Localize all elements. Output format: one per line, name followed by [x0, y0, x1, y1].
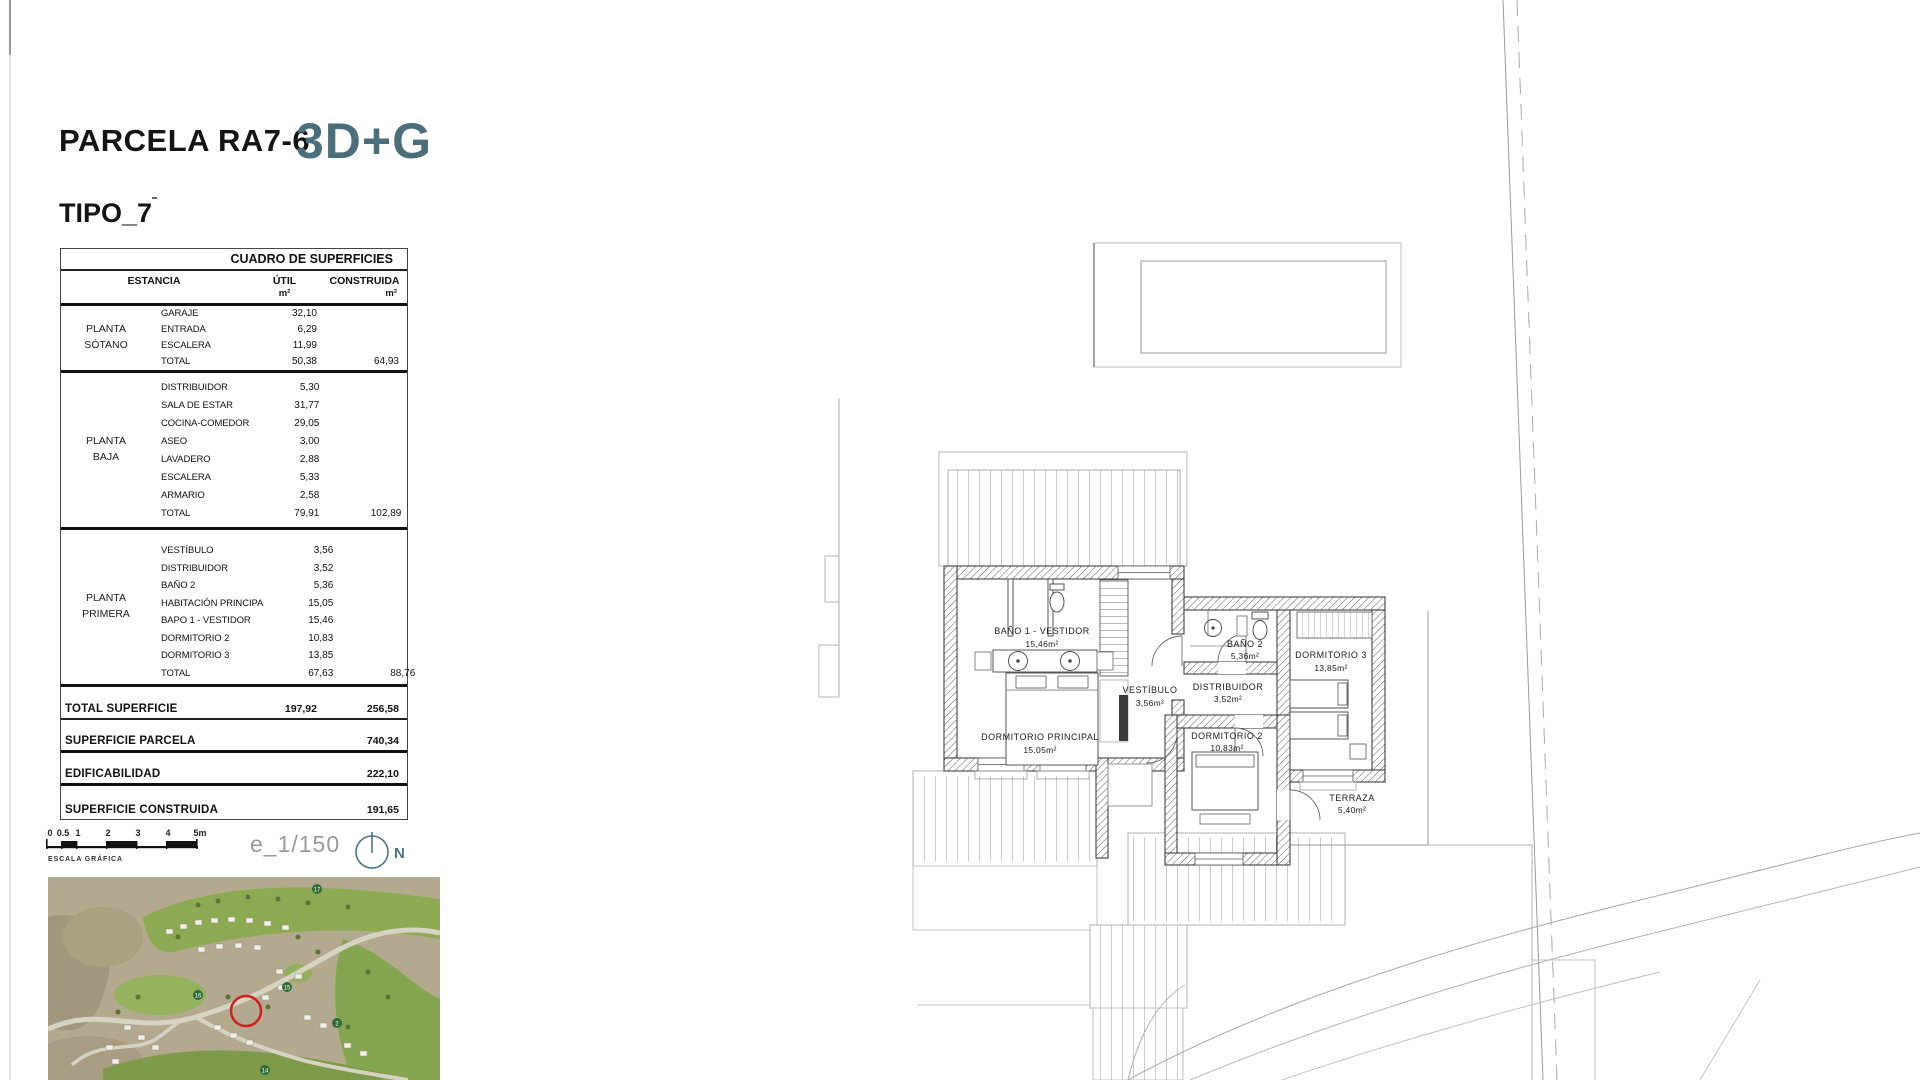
room-label-distribuidor: DISTRIBUIDOR: [1193, 682, 1264, 692]
group-label: PLANTA SÓTANO: [61, 306, 151, 370]
type-label: TIPO_7: [59, 198, 152, 229]
scale-tick: 0.5: [57, 828, 70, 838]
col-util-unit: m²: [247, 288, 322, 301]
model-code: 3D+G: [296, 112, 432, 170]
table-row: LAVADERO2,88: [151, 451, 409, 469]
room-label-dormitorio3: DORMITORIO 3: [1295, 650, 1367, 660]
room-label-principal: DORMITORIO PRINCIPAL: [981, 732, 1099, 742]
section-planta-sotano: PLANTA SÓTANO GARAJE32,10 ENTRADA6,29 ES…: [61, 306, 407, 373]
room-area-distribuidor: 3,52m²: [1214, 694, 1242, 704]
scale-tick: 2: [105, 828, 110, 838]
table-row: DORMITORIO 210,83: [151, 629, 423, 647]
location-map: 17 16 15 2 14: [48, 877, 440, 1080]
table-total-row: TOTAL67,6388,76: [151, 664, 423, 682]
table-row: HABITACIÓN PRINCIPA15,05: [151, 594, 423, 612]
table-row: BAÑO 25,36: [151, 577, 423, 595]
group-label: PLANTA BAJA: [61, 373, 151, 527]
col-util: ÚTIL: [247, 274, 322, 288]
room-area-bano1: 15,46m²: [1025, 639, 1058, 649]
table-row: ENTRADA6,29: [151, 322, 407, 338]
room-label-terraza: TERRAZA: [1329, 793, 1375, 803]
table-title: CUADRO DE SUPERFICIES: [61, 249, 407, 271]
north-label: N: [394, 845, 405, 862]
north-arrow-icon: N: [342, 822, 422, 878]
scale-tick: 4: [165, 828, 170, 838]
graphic-scale-bar: 0 0.5 1 2 3 4 5m ESCALA GRÁFICA: [48, 828, 223, 870]
table-total-row: TOTAL79,91102,89: [151, 505, 409, 523]
scale-tick: 5m: [193, 828, 206, 838]
table-row: DORMITORIO 313,85: [151, 647, 423, 665]
room-area-dormitorio2: 10,83m²: [1210, 743, 1243, 753]
table-header: ESTANCIA ÚTIL m² CONSTRUIDA m²: [61, 271, 407, 306]
summary-superficie-construida: SUPERFICIE CONSTRUIDA 191,65: [61, 786, 407, 819]
page-title: PARCELA RA7-6: [59, 123, 310, 159]
col-construida-unit: m²: [385, 288, 407, 301]
room-area-principal: 15,05m²: [1023, 745, 1056, 755]
scale-caption: ESCALA GRÁFICA: [48, 856, 123, 863]
table-row: VESTÍBULO3,56: [151, 542, 423, 560]
group-label: PLANTA PRIMERA: [61, 530, 151, 684]
room-label-vestibulo: VESTÍBULO: [1122, 685, 1177, 695]
room-area-terraza: 5,40m²: [1338, 805, 1366, 815]
table-row: ASEO3,00: [151, 433, 409, 451]
scale-tick: 3: [135, 828, 140, 838]
section-planta-baja: PLANTA BAJA DISTRIBUIDOR5,30 SALA DE EST…: [61, 373, 407, 530]
pool-outline: [1094, 243, 1401, 367]
svg-text:14: 14: [262, 1069, 269, 1075]
table-row: ARMARIO2,58: [151, 487, 409, 505]
table-row: GARAJE32,10: [151, 306, 407, 322]
summary-edificabilidad: EDIFICABILIDAD 222,10: [61, 753, 407, 786]
col-estancia: ESTANCIA: [61, 274, 247, 288]
svg-text:16: 16: [195, 994, 202, 1000]
summary-superficie-parcela: SUPERFICIE PARCELA 740,34: [61, 720, 407, 753]
room-label-bano2: BAÑO 2: [1227, 639, 1263, 649]
surfaces-table: CUADRO DE SUPERFICIES ESTANCIA ÚTIL m² C…: [60, 248, 408, 820]
scale-ratio-text: e_1/150: [250, 831, 340, 858]
table-row: DISTRIBUIDOR3,52: [151, 559, 423, 577]
room-label-dormitorio2: DORMITORIO 2: [1191, 731, 1263, 741]
scale-tick: 0: [47, 828, 52, 838]
room-area-dormitorio3: 13,85m²: [1314, 663, 1347, 673]
col-construida: CONSTRUIDA: [322, 274, 407, 288]
svg-text:15: 15: [284, 986, 291, 992]
tick-mark: [152, 197, 157, 199]
room-area-bano2: 5,36m²: [1231, 651, 1259, 661]
table-row: ESCALERA5,33: [151, 469, 409, 487]
scale-tick: 1: [75, 828, 80, 838]
table-row: COCINA-COMEDOR29,05: [151, 415, 409, 433]
svg-text:17: 17: [314, 888, 321, 894]
table-total-row: TOTAL50,3864,93: [151, 354, 407, 370]
table-row: ESCALERA11,99: [151, 338, 407, 354]
scale-bar-graphic: [46, 839, 204, 851]
room-label-bano1: BAÑO 1 - VESTIDOR: [994, 626, 1090, 636]
table-row: SALA DE ESTAR31,77: [151, 397, 409, 415]
section-planta-primera: PLANTA PRIMERA VESTÍBULO3,56 DISTRIBUIDO…: [61, 530, 407, 687]
summary-total-superficie: TOTAL SUPERFICIE 197,92 256,58: [61, 687, 407, 720]
table-row: BAPO 1 - VESTIDOR15,46: [151, 612, 423, 630]
room-area-vestibulo: 3,56m²: [1136, 698, 1164, 708]
table-row: DISTRIBUIDOR5,30: [151, 379, 409, 397]
